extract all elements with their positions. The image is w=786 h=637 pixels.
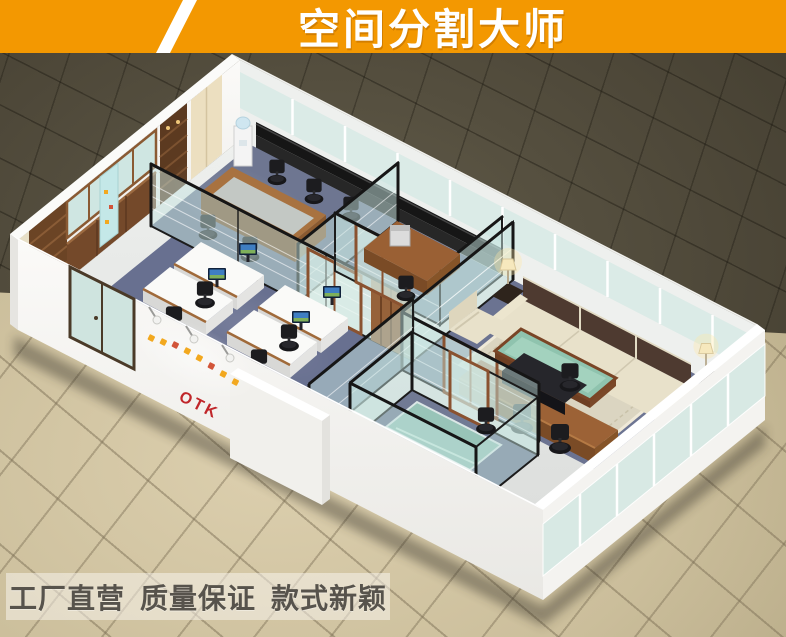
office-chair: [305, 179, 324, 205]
slogan-band: 工厂直营 质量保证 款式新颖: [6, 573, 390, 620]
slogan-quality-guarantee: 质量保证: [140, 577, 256, 617]
title-banner: 空间分割大师: [0, 0, 786, 53]
slogan-factory-direct: 工厂直营: [9, 577, 125, 617]
office-3d-render: OTK: [0, 0, 786, 637]
office-chair: [279, 324, 299, 351]
printer: [390, 225, 410, 246]
office-chair: [195, 281, 215, 308]
product-poster: OTK 空间分割大师 工厂直营 质量保证 款式新颖: [0, 0, 786, 637]
office-chair: [268, 160, 287, 186]
slogan-new-styles: 款式新颖: [271, 577, 387, 617]
poster-title: 空间分割大师: [0, 0, 786, 53]
water-dispenser: [234, 117, 252, 166]
office-chair: [560, 363, 581, 392]
office-chair: [476, 407, 496, 434]
office-chair: [549, 424, 571, 454]
office-chair: [397, 276, 416, 302]
wall-poster: [100, 163, 118, 247]
